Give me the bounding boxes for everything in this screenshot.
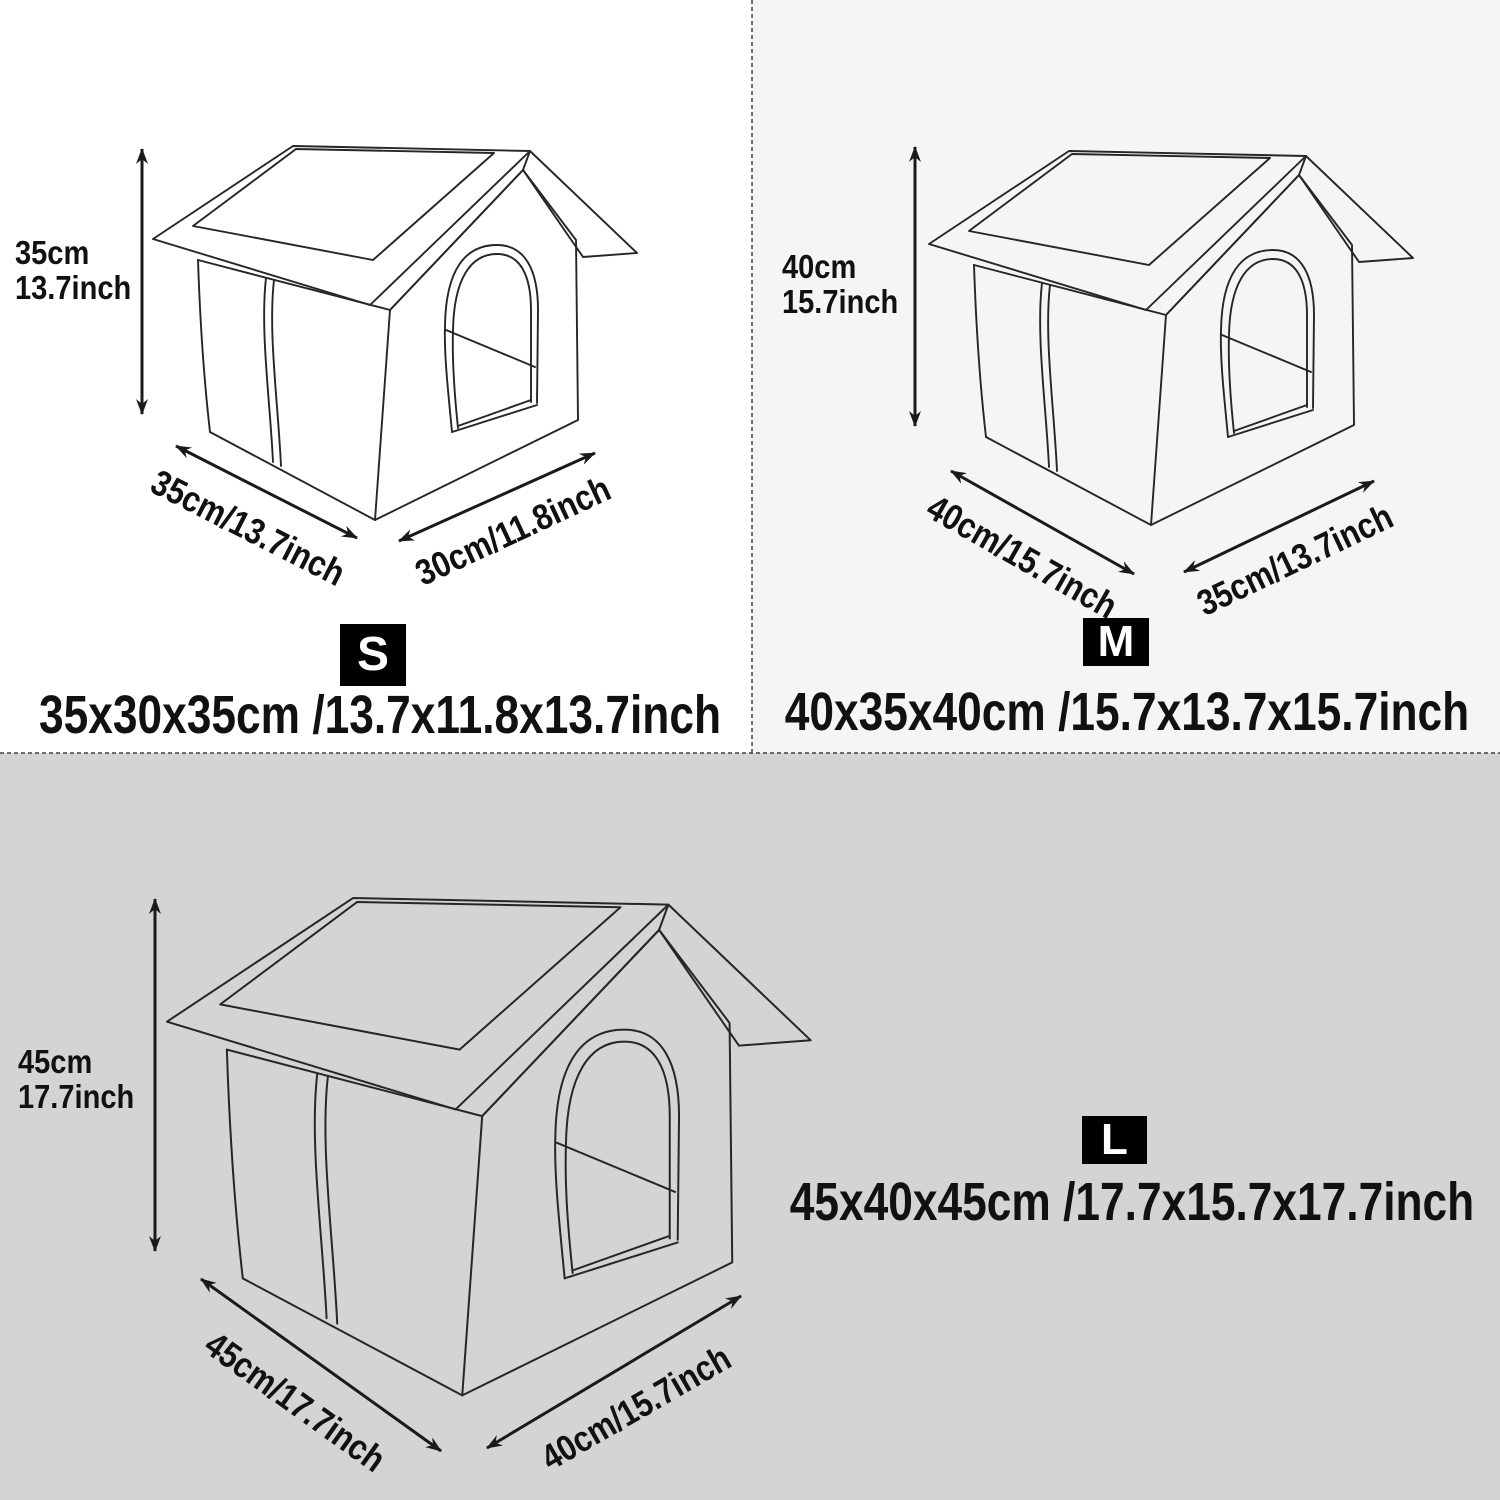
size-badge-l: L — [1082, 1116, 1147, 1164]
size-chart-diagram: 35cm 13.7inch 35cm/13.7inch 30cm/11.8inc… — [0, 0, 1500, 1500]
height-inch-m: 15.7inch — [782, 284, 898, 319]
height-label-l: 45cm 17.7inch — [18, 1044, 134, 1114]
height-inch-s: 13.7inch — [15, 270, 131, 305]
height-label-m: 40cm 15.7inch — [782, 249, 898, 319]
height-inch-l: 17.7inch — [18, 1079, 134, 1114]
height-cm-m: 40cm — [782, 249, 898, 284]
size-badge-m: M — [1083, 618, 1149, 666]
size-badge-s: S — [340, 624, 406, 686]
height-label-s: 35cm 13.7inch — [15, 235, 131, 305]
height-cm-s: 35cm — [15, 235, 131, 270]
height-cm-l: 45cm — [18, 1044, 134, 1079]
dimensions-summary-l: 45x40x45cm /17.7x15.7x17.7inch — [790, 1171, 1474, 1233]
panel-size-l — [0, 753, 1500, 1500]
dimensions-summary-s: 35x30x35cm /13.7x11.8x13.7inch — [39, 684, 721, 746]
dimensions-summary-m: 40x35x40cm /15.7x13.7x15.7inch — [785, 681, 1469, 743]
